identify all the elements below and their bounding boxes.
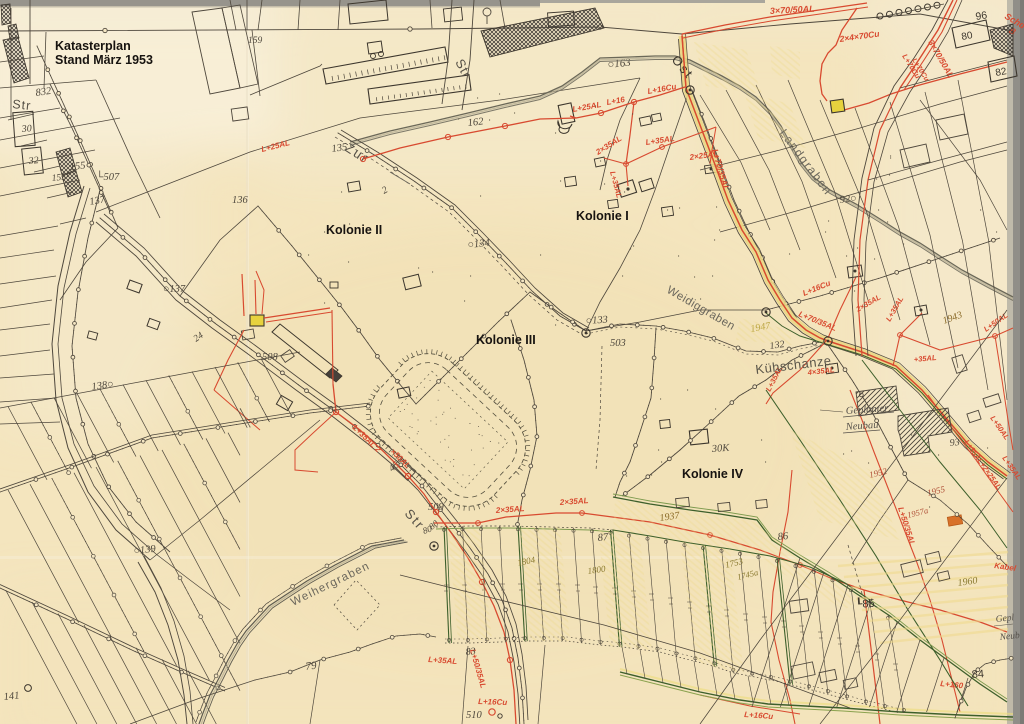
svg-text:└507: └507 — [96, 170, 120, 183]
svg-text:30K: 30K — [710, 443, 730, 455]
svg-text:155¹: 155¹ — [51, 172, 69, 184]
svg-text:96: 96 — [975, 9, 988, 23]
svg-text:○133: ○133 — [585, 314, 608, 327]
svg-text:93: 93 — [949, 437, 960, 449]
svg-text:Str: Str — [12, 97, 32, 113]
svg-text:Katasterplan: Katasterplan — [55, 39, 131, 53]
svg-text:Stand März 1953: Stand März 1953 — [55, 53, 153, 67]
svg-text:Kolonie III: Kolonie III — [476, 333, 536, 347]
svg-text:┖85: ┖85 — [855, 596, 875, 611]
svg-text:Kolonie I: Kolonie I — [576, 209, 629, 223]
svg-text:86: 86 — [777, 531, 789, 543]
svg-text:30: 30 — [20, 123, 32, 135]
svg-text:136: 136 — [232, 195, 249, 206]
svg-text:L+16Cu: L+16Cu — [478, 697, 508, 707]
svg-text:832: 832 — [35, 86, 53, 99]
svg-text:Gepl: Gepl — [995, 613, 1015, 625]
svg-text:141: 141 — [3, 690, 20, 703]
svg-text:155: 155 — [69, 160, 86, 173]
svg-text:87: 87 — [597, 532, 609, 544]
svg-text:159: 159 — [248, 36, 263, 46]
svg-text:162: 162 — [467, 116, 485, 129]
svg-text:92○: 92○ — [839, 193, 857, 206]
svg-text:Neubau: Neubau — [844, 420, 878, 433]
svg-text:510: 510 — [466, 710, 483, 721]
svg-text:503: 503 — [610, 338, 626, 349]
svg-text:83: 83 — [465, 646, 476, 658]
svg-text:Kolonie IV: Kolonie IV — [682, 467, 744, 481]
svg-text:Kolonie II: Kolonie II — [326, 223, 382, 237]
